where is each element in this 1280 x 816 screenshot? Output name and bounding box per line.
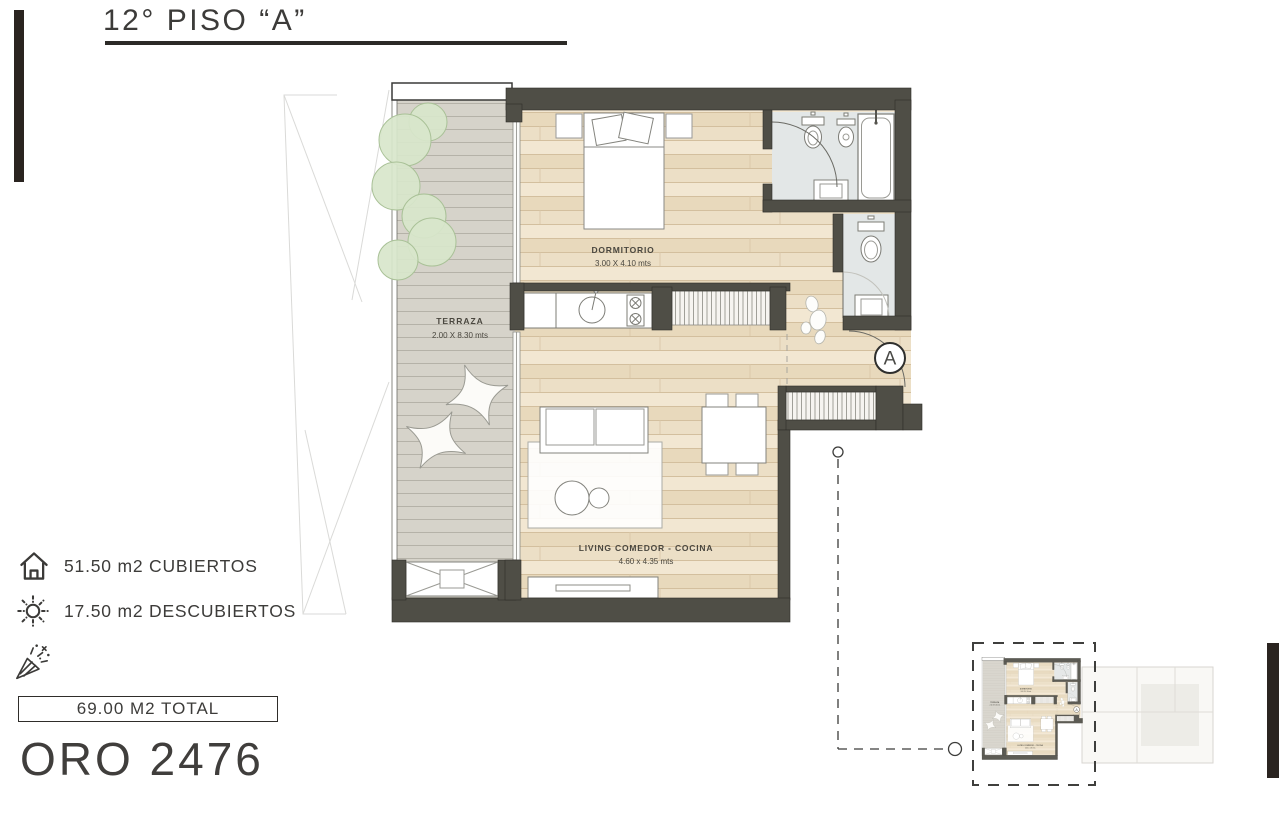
tree — [378, 240, 418, 280]
entry-closet-hatch — [786, 392, 876, 420]
coffee-table-small — [589, 488, 609, 508]
house-icon — [18, 550, 50, 582]
connector-node-right — [949, 743, 962, 756]
dining-table — [702, 407, 766, 463]
bed — [584, 112, 664, 229]
bathroom-vanity — [814, 180, 848, 201]
floor-plan-page: 12° PISO “A” — [0, 0, 1280, 816]
total-area-box: 69.00 M2 TOTAL — [18, 696, 278, 722]
confetti-icon — [12, 641, 52, 683]
room-dims-living: 4.60 x 4.35 mts — [619, 557, 674, 566]
room-dims-dormitorio: 3.00 X 4.10 mts — [595, 259, 651, 268]
room-label-dormitorio: DORMITORIO — [591, 245, 654, 255]
project-name: ORO 2476 — [20, 732, 264, 786]
terraza-lounger — [406, 562, 498, 596]
bathtub — [858, 110, 894, 202]
window — [513, 112, 520, 560]
room-label-terraza: TERRAZA — [436, 316, 484, 326]
nightstand-left — [556, 114, 582, 138]
total-area-text: 69.00 M2 TOTAL — [77, 699, 220, 719]
mini-plan — [982, 657, 1083, 759]
rug — [528, 442, 662, 528]
plan-canvas: A TERRAZA 2.00 X 8.30 mts DORMITORIO 3.0… — [0, 0, 1280, 816]
legend-cubiertos-text: 51.50 m2 CUBIERTOS — [64, 556, 258, 577]
sink-2 — [855, 295, 888, 318]
room-dims-terraza: 2.00 X 8.30 mts — [432, 331, 488, 340]
unit-plan: A TERRAZA 2.00 X 8.30 mts DORMITORIO 3.0… — [392, 83, 922, 622]
coffee-table-large — [555, 481, 589, 515]
connector-dashed-line — [838, 459, 948, 749]
unit-marker-letter: A — [884, 349, 897, 370]
unit-marker: A — [875, 343, 905, 373]
sun-icon — [16, 594, 50, 628]
ghost-building — [1082, 667, 1213, 763]
decor-bar-right — [1267, 643, 1279, 778]
connector-node-top — [833, 447, 843, 457]
room-label-living: LIVING COMEDOR - COCINA — [579, 543, 714, 553]
sofa — [540, 407, 648, 453]
nightstand-right — [666, 114, 692, 138]
tree — [379, 114, 431, 166]
legend-descubiertos-text: 17.50 m2 DESCUBIERTOS — [64, 601, 296, 622]
tv-unit — [528, 577, 658, 598]
legend-row-amenity — [12, 641, 52, 683]
legend-row-descubiertos: 17.50 m2 DESCUBIERTOS — [16, 594, 296, 628]
terraza-parapet — [392, 83, 512, 100]
legend-row-cubiertos: 51.50 m2 CUBIERTOS — [18, 550, 258, 582]
kitchen-counter — [524, 289, 652, 328]
wardrobe-hatch — [672, 291, 770, 325]
ghost-boundary-lines — [284, 90, 389, 614]
